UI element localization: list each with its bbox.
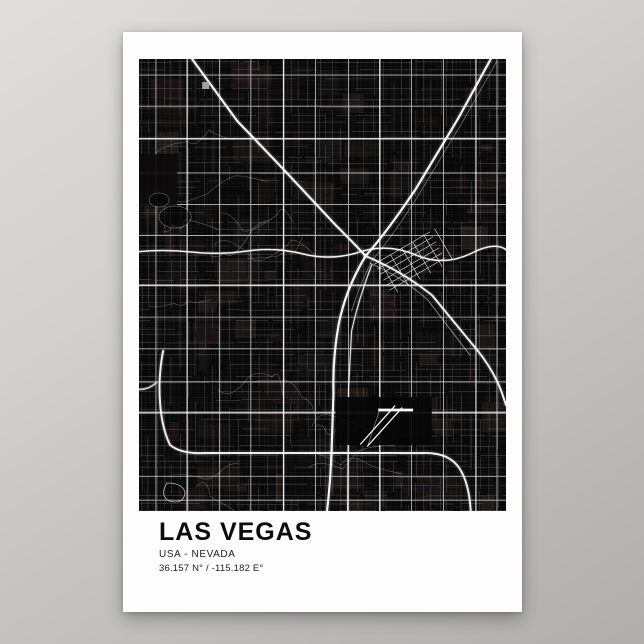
poster-caption: LAS VEGAS USA - NEVADA 36.157 N° / -115.… [159, 520, 312, 574]
city-title: LAS VEGAS [159, 520, 312, 545]
scene-backdrop: LAS VEGAS USA - NEVADA 36.157 N° / -115.… [0, 0, 644, 644]
city-map-svg [139, 59, 506, 511]
country-state-subtitle: USA - NEVADA [159, 549, 312, 561]
city-map [139, 59, 506, 511]
coordinates-text: 36.157 N° / -115.182 E° [159, 563, 312, 574]
map-poster: LAS VEGAS USA - NEVADA 36.157 N° / -115.… [123, 32, 522, 612]
